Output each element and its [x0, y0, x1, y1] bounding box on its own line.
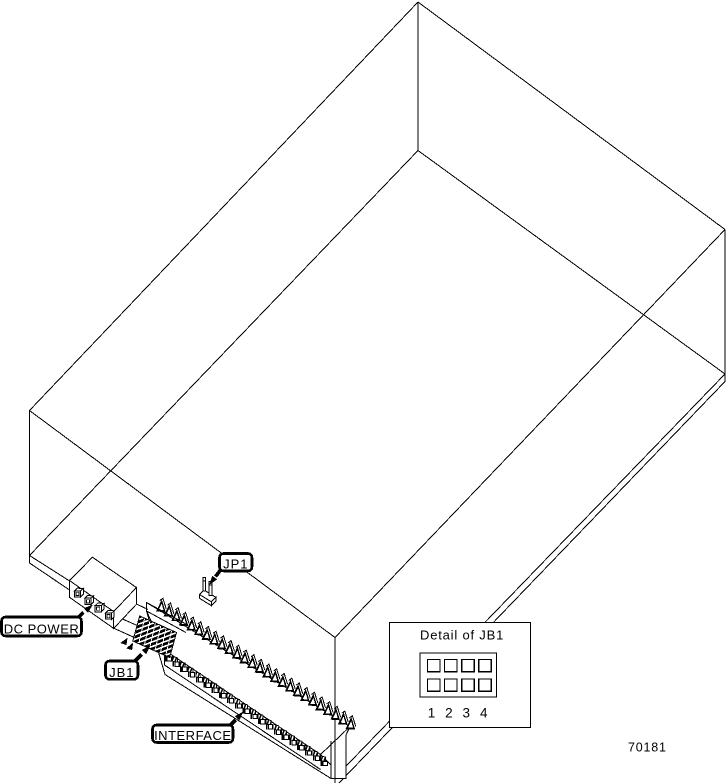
svg-text:INTERFACE: INTERFACE — [154, 728, 231, 743]
svg-text:Detail of JB1: Detail of JB1 — [420, 628, 504, 643]
svg-text:4: 4 — [480, 706, 488, 721]
svg-text:JB1: JB1 — [109, 665, 134, 680]
svg-text:JP1: JP1 — [223, 557, 248, 572]
svg-text:DC POWER: DC POWER — [4, 622, 80, 637]
svg-text:1: 1 — [428, 706, 436, 721]
svg-text:3: 3 — [463, 706, 471, 721]
svg-text:2: 2 — [445, 706, 453, 721]
svg-text:70181: 70181 — [628, 741, 667, 755]
